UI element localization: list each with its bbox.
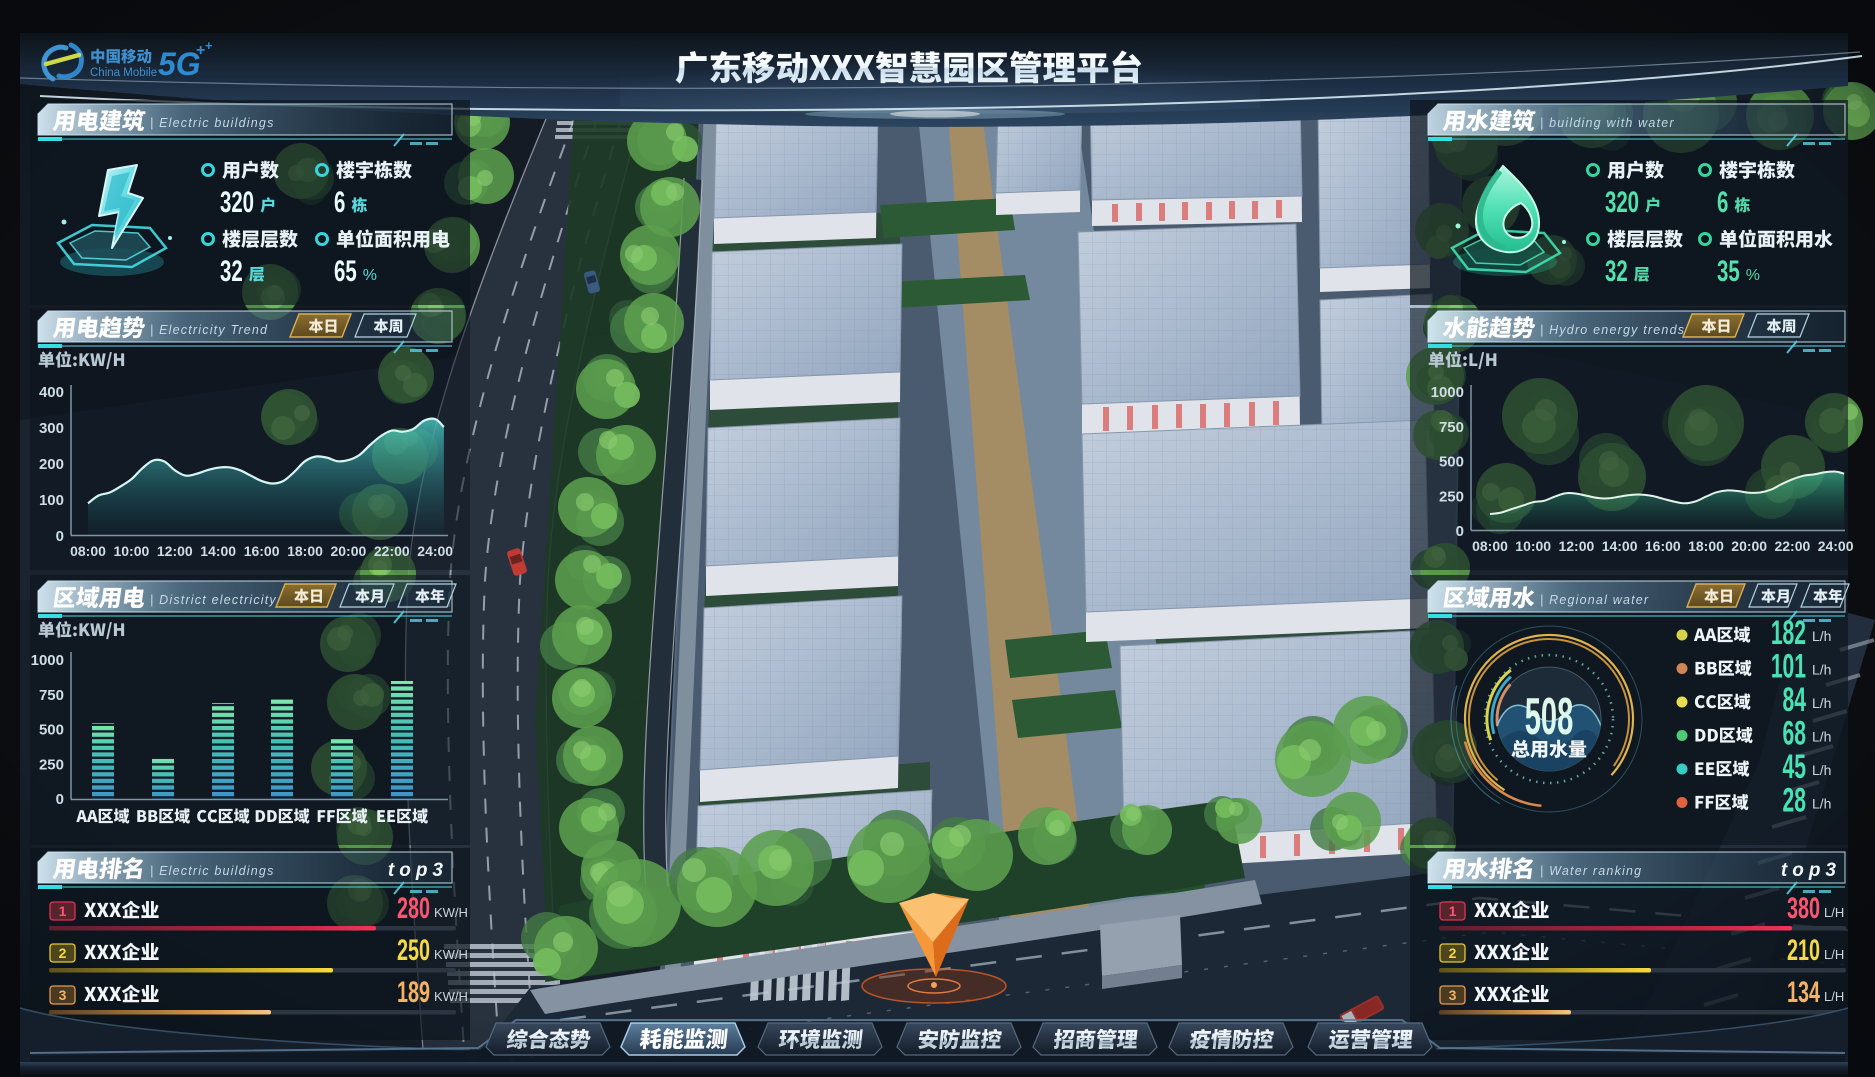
svg-text:22:00: 22:00: [374, 543, 410, 559]
svg-text:14:00: 14:00: [200, 543, 236, 559]
svg-text:320: 320: [220, 186, 254, 219]
svg-text:65: 65: [334, 255, 357, 288]
svg-text:250: 250: [1439, 488, 1464, 505]
svg-text:24:00: 24:00: [1818, 538, 1854, 554]
svg-text:10:00: 10:00: [1515, 538, 1551, 554]
svg-text:+: +: [205, 38, 213, 53]
svg-text:%: %: [1746, 267, 1760, 284]
svg-text:08:00: 08:00: [1472, 538, 1508, 554]
svg-text:1: 1: [59, 903, 67, 919]
svg-text:L/H: L/H: [1824, 947, 1844, 962]
svg-text:380: 380: [1787, 892, 1820, 925]
svg-text:| District electricity: | District electricity: [150, 593, 277, 607]
svg-text:| Electric buildings: | Electric buildings: [150, 116, 275, 130]
svg-text:750: 750: [1439, 419, 1464, 436]
svg-text:L/h: L/h: [1812, 662, 1831, 678]
svg-text:3: 3: [59, 987, 67, 1003]
svg-text:18:00: 18:00: [1688, 538, 1724, 554]
svg-text:top3: top3: [388, 860, 448, 881]
svg-text:24:00: 24:00: [417, 543, 453, 559]
svg-text:200: 200: [39, 456, 64, 473]
svg-text:508: 508: [1525, 687, 1574, 745]
svg-text:KW/H: KW/H: [434, 989, 468, 1004]
svg-text:China Mobile: China Mobile: [90, 67, 157, 79]
svg-text:16:00: 16:00: [1645, 538, 1681, 554]
svg-text:L/H: L/H: [1824, 989, 1844, 1004]
svg-text:210: 210: [1787, 934, 1820, 967]
svg-text:2: 2: [1449, 945, 1457, 961]
svg-text:L/h: L/h: [1812, 628, 1831, 644]
svg-text:16:00: 16:00: [244, 543, 280, 559]
svg-text:189: 189: [397, 976, 430, 1009]
svg-text:| Electric buildings: | Electric buildings: [150, 864, 275, 878]
svg-text:L/H: L/H: [1824, 905, 1844, 920]
svg-text:250: 250: [397, 934, 430, 967]
svg-text:08:00: 08:00: [70, 543, 106, 559]
svg-text:134: 134: [1787, 976, 1820, 1009]
svg-text:250: 250: [39, 756, 64, 773]
svg-text:320: 320: [1605, 186, 1639, 219]
svg-text:KW/H: KW/H: [434, 947, 468, 962]
svg-text:22:00: 22:00: [1774, 538, 1810, 554]
svg-text:6: 6: [1717, 186, 1728, 219]
svg-text:500: 500: [39, 722, 64, 739]
svg-text:| Regional water: | Regional water: [1540, 593, 1649, 607]
svg-text:%: %: [363, 267, 377, 284]
svg-text:top3: top3: [1781, 860, 1841, 881]
svg-text:0: 0: [56, 791, 64, 808]
svg-text:28: 28: [1783, 780, 1806, 818]
svg-text:10:00: 10:00: [113, 543, 149, 559]
svg-text:| building with water: | building with water: [1540, 116, 1675, 130]
svg-text:L/h: L/h: [1812, 695, 1831, 711]
svg-text:32: 32: [1605, 255, 1628, 288]
svg-text:20:00: 20:00: [1731, 538, 1767, 554]
svg-text:L/h: L/h: [1812, 796, 1831, 812]
svg-text:500: 500: [1439, 454, 1464, 471]
svg-text:14:00: 14:00: [1602, 538, 1638, 554]
svg-text:35: 35: [1717, 255, 1740, 288]
svg-text:| Water ranking: | Water ranking: [1540, 864, 1642, 878]
svg-text:18:00: 18:00: [287, 543, 323, 559]
svg-text:12:00: 12:00: [1558, 538, 1594, 554]
svg-text:750: 750: [39, 687, 64, 704]
svg-text:1000: 1000: [31, 652, 64, 669]
svg-text:280: 280: [397, 892, 430, 925]
svg-text:32: 32: [220, 255, 243, 288]
svg-text:| Electricity Trend: | Electricity Trend: [150, 323, 268, 337]
svg-text:2: 2: [59, 945, 67, 961]
svg-text:1000: 1000: [1431, 384, 1464, 401]
svg-text:100: 100: [39, 492, 64, 509]
svg-text:400: 400: [39, 384, 64, 401]
svg-text:6: 6: [334, 186, 345, 219]
svg-text:3: 3: [1449, 987, 1457, 1003]
svg-text:20:00: 20:00: [330, 543, 366, 559]
svg-text:KW/H: KW/H: [434, 905, 468, 920]
svg-text:L/h: L/h: [1812, 762, 1831, 778]
svg-text:0: 0: [1456, 523, 1464, 540]
svg-text:5G: 5G: [158, 46, 201, 82]
svg-text:12:00: 12:00: [157, 543, 193, 559]
svg-text:+: +: [196, 42, 205, 59]
svg-text:| Hydro energy trends: | Hydro energy trends: [1540, 323, 1685, 337]
svg-text:300: 300: [39, 420, 64, 437]
svg-text:0: 0: [56, 528, 64, 545]
svg-text:L/h: L/h: [1812, 729, 1831, 745]
svg-text:1: 1: [1449, 903, 1457, 919]
